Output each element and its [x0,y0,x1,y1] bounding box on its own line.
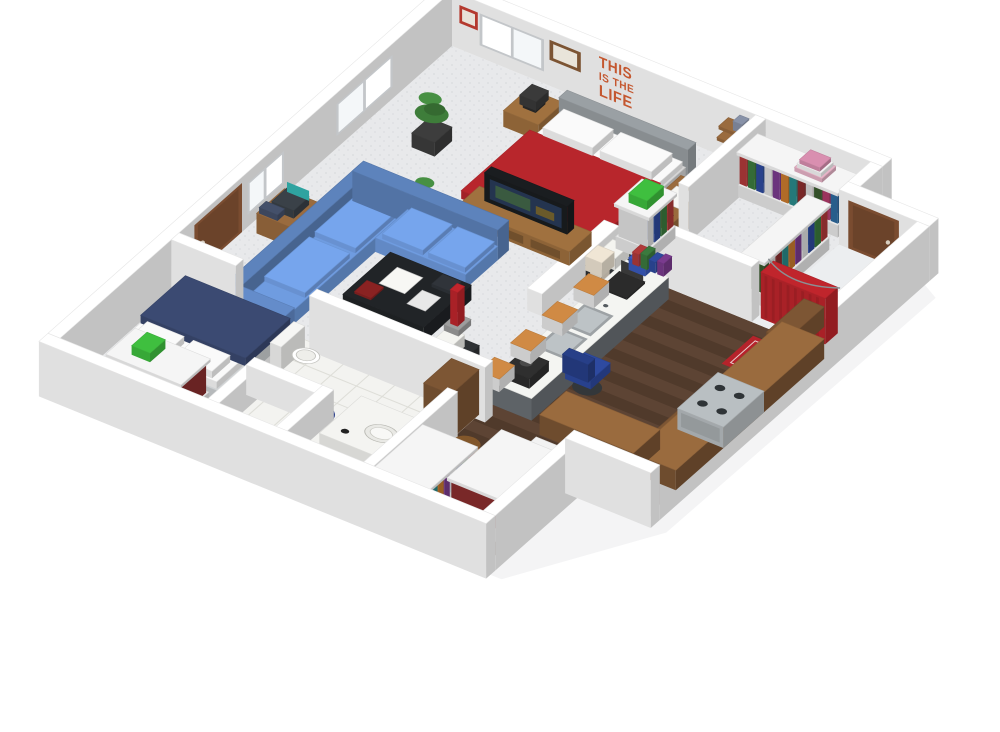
door-knob [886,240,890,244]
floor-plan-image: THIS IS THE LIFE [0,0,1000,732]
floor-plan-svg: THIS IS THE LIFE [0,0,1000,732]
